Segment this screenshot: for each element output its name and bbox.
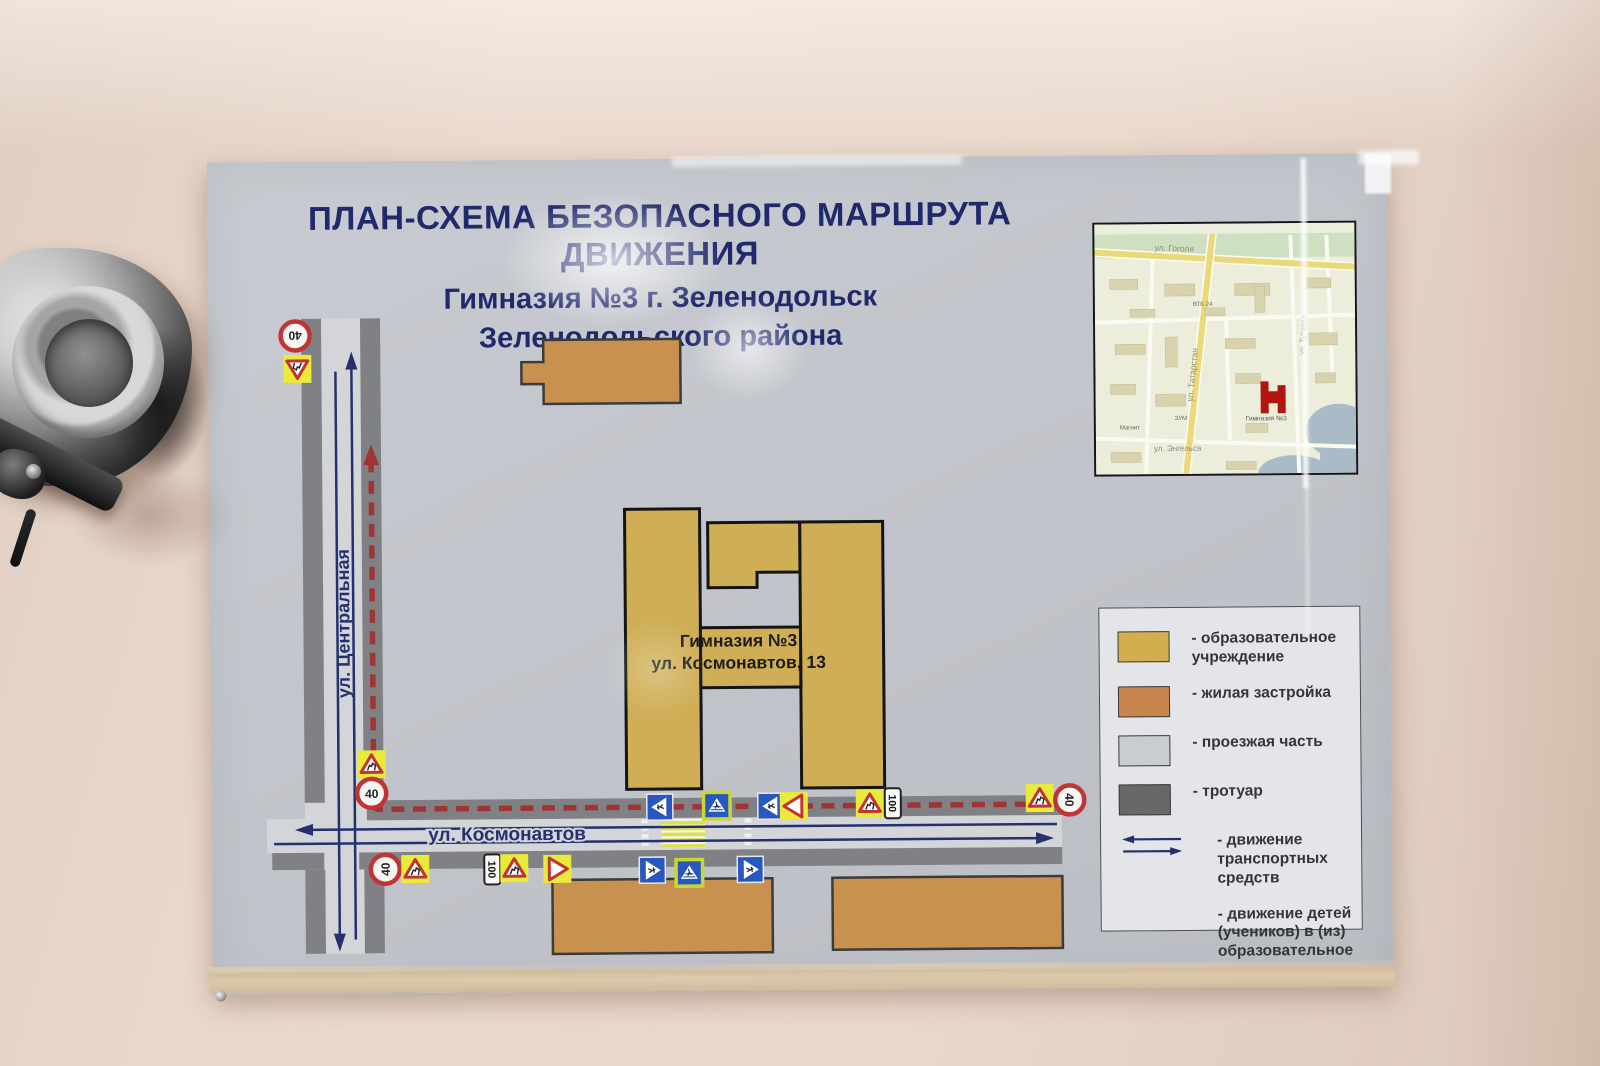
legend-item: - жилая застройка <box>1118 683 1350 717</box>
legend-swatch <box>1118 685 1192 718</box>
wall-photo: { "poster": { "title_line1": "ПЛАН-СХЕМА… <box>0 0 1600 1066</box>
svg-text:40: 40 <box>379 862 393 876</box>
svg-text:40: 40 <box>365 787 379 801</box>
sign-children <box>500 854 528 882</box>
legend-label: - проезжая часть <box>1192 733 1323 753</box>
building-residential-top <box>521 339 680 404</box>
svg-text:40: 40 <box>1062 793 1076 807</box>
legend-rows: - образовательное учреждение- жилая заст… <box>1117 629 1352 982</box>
building-residential-left <box>552 878 773 954</box>
fixture-screw <box>26 464 41 479</box>
legend-swatch <box>1117 630 1191 663</box>
svg-text:100: 100 <box>886 794 898 812</box>
sign-children <box>856 789 884 817</box>
legend-arrows-icon <box>1119 832 1193 861</box>
legend-swatch <box>1119 783 1193 816</box>
street-label-tsentralnaya: ул. Центральная <box>333 549 354 698</box>
legend-label: - образовательное учреждение <box>1191 629 1336 668</box>
legend-swatch-color <box>1117 631 1169 662</box>
inset-street-engelsa: ул. Энгельса <box>1154 444 1202 453</box>
street-label-kosmonavtov: ул. Космонавтов <box>428 824 586 846</box>
legend-item: - тротуар <box>1119 781 1351 815</box>
sign-children <box>401 855 429 883</box>
legend-swatch-color <box>1119 784 1171 815</box>
sign-pedcross <box>674 858 704 888</box>
inset-city-map: ул. Гоголя ул. Татарстан ул. Тутаева ул.… <box>1092 221 1358 477</box>
sign-ped <box>647 794 673 820</box>
inset-poi-magnit: Магнит <box>1120 425 1140 431</box>
inset-poi-vtb: ВТБ 24 <box>1193 302 1213 308</box>
sign-giveway <box>780 792 808 820</box>
legend-label: - движение транспортных средств <box>1217 830 1351 888</box>
fixture-cable <box>9 508 37 568</box>
sign-ped <box>639 857 665 883</box>
inset-street-gogolya: ул. Гоголя <box>1154 242 1194 254</box>
sign-speed40: 40 <box>1055 785 1084 814</box>
route-poster: ПЛАН-СХЕМА БЕЗОПАСНОГО МАРШРУТА ДВИЖЕНИЯ… <box>207 153 1393 994</box>
legend: - образовательное учреждение- жилая заст… <box>1098 606 1363 932</box>
legend-swatch-color <box>1118 735 1170 766</box>
inset-map-svg: ул. Гоголя ул. Татарстан ул. Тутаева ул.… <box>1094 223 1356 475</box>
sign-plate100: 100 <box>484 854 500 884</box>
svg-text:40: 40 <box>288 328 302 342</box>
fixture-ring-inner <box>45 319 133 407</box>
legend-item: - образовательное учреждение <box>1117 629 1349 669</box>
sign-ped <box>737 856 763 882</box>
two-way-arrow-icon <box>1119 832 1185 861</box>
inset-poi-zum: ЗУМ <box>1175 416 1187 422</box>
school-label-1: Гимназия №3 <box>680 630 798 651</box>
sign-giveway <box>543 855 571 883</box>
tape-strip <box>209 965 1395 993</box>
legend-swatch <box>1118 734 1192 767</box>
svg-text:100: 100 <box>485 861 497 879</box>
school-label-2: ул. Космонавтов, 13 <box>651 652 826 673</box>
sign-children <box>283 355 311 383</box>
inset-school-marker-label: Гимназия №3 <box>1246 415 1287 422</box>
sign-pedcross <box>702 791 732 821</box>
metal-door-fixture <box>0 240 215 550</box>
sign-children <box>357 750 385 778</box>
legend-item: - движение транспортных средств <box>1119 830 1351 889</box>
sign-speed40: 40 <box>371 855 400 884</box>
legend-label: - жилая застройка <box>1192 684 1331 704</box>
sign-children <box>1026 784 1054 812</box>
mounting-pin <box>215 991 226 1002</box>
sign-speed40: 40 <box>281 321 310 350</box>
inset-street-tutaeva: ул. Тутаева <box>1297 314 1308 355</box>
legend-label: - тротуар <box>1193 782 1263 801</box>
legend-empty-symbol <box>1120 905 1194 906</box>
legend-swatch-color <box>1118 686 1170 717</box>
building-residential-right <box>832 876 1063 950</box>
legend-item: - проезжая часть <box>1118 732 1350 766</box>
sign-speed40: 40 <box>357 779 386 808</box>
sign-plate100: 100 <box>885 788 901 818</box>
